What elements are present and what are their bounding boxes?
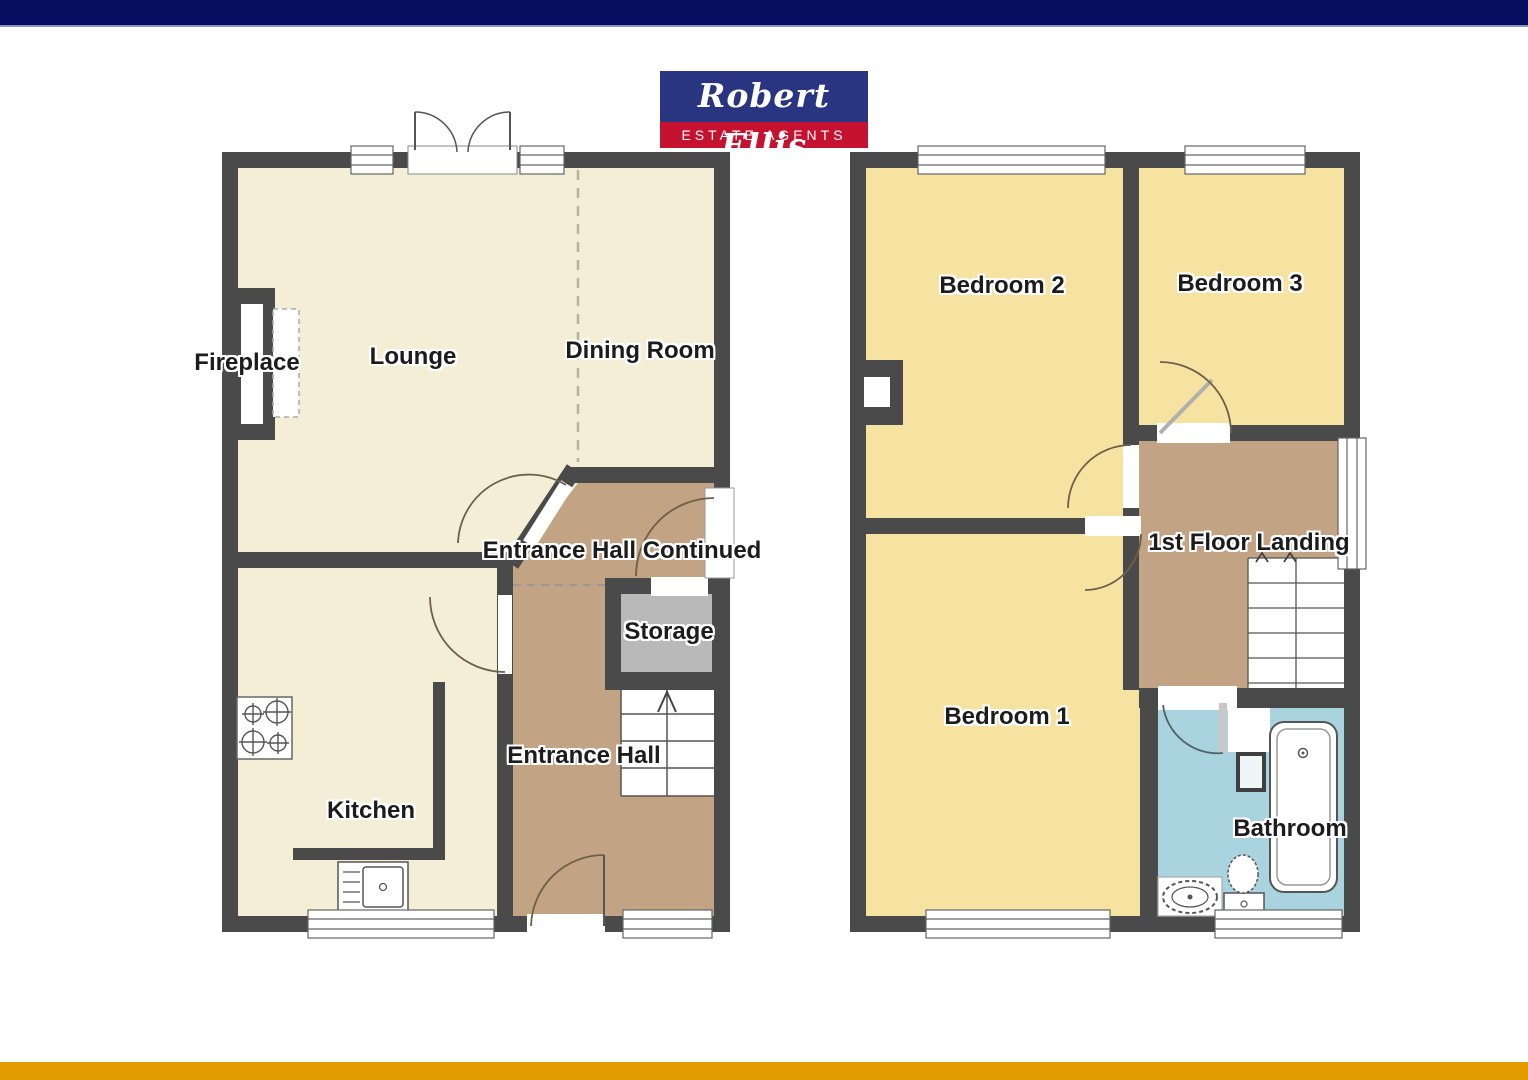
room-label-bathroom: Bathroom: [1233, 815, 1346, 843]
room-label-bedroom-3: Bedroom 3: [1177, 270, 1302, 298]
room-label-landing: 1st Floor Landing: [1148, 529, 1349, 557]
room-label-bedroom-2: Bedroom 2: [939, 272, 1064, 300]
chimney-breast: [850, 360, 903, 425]
ff-stairs: [1248, 553, 1344, 688]
room-label-kitchen: Kitchen: [327, 797, 415, 825]
bathtub-icon: [1270, 722, 1337, 892]
floorplan-page: Robert Ellis ESTATE AGENTS: [0, 0, 1528, 1080]
basin-icon: [1158, 877, 1222, 916]
room-label-fireplace: Fireplace: [194, 349, 299, 377]
room-label-entrance-hall-continued: Entrance Hall Continued: [483, 537, 762, 565]
french-doors: [408, 112, 517, 174]
dining-window: [520, 146, 564, 174]
bedroom1-window: [926, 910, 1110, 938]
ground-floor-plan: [222, 112, 734, 938]
bedroom3-window: [1185, 146, 1305, 174]
room-label-lounge: Lounge: [370, 343, 457, 371]
room-label-bedroom-1: Bedroom 1: [944, 703, 1069, 731]
hall-window: [623, 910, 712, 938]
bottom-accent-bar: [0, 1062, 1528, 1080]
hob-icon: [237, 697, 292, 759]
lounge-window: [351, 146, 393, 174]
room-label-storage: Storage: [624, 618, 713, 646]
room-label-dining-room: Dining Room: [565, 337, 714, 365]
bathroom-window: [1215, 910, 1342, 938]
kitchen-window: [308, 910, 494, 938]
room-label-entrance-hall: Entrance Hall: [507, 742, 660, 770]
bedroom2-window: [918, 146, 1105, 174]
kitchen-sink-icon: [338, 862, 408, 912]
